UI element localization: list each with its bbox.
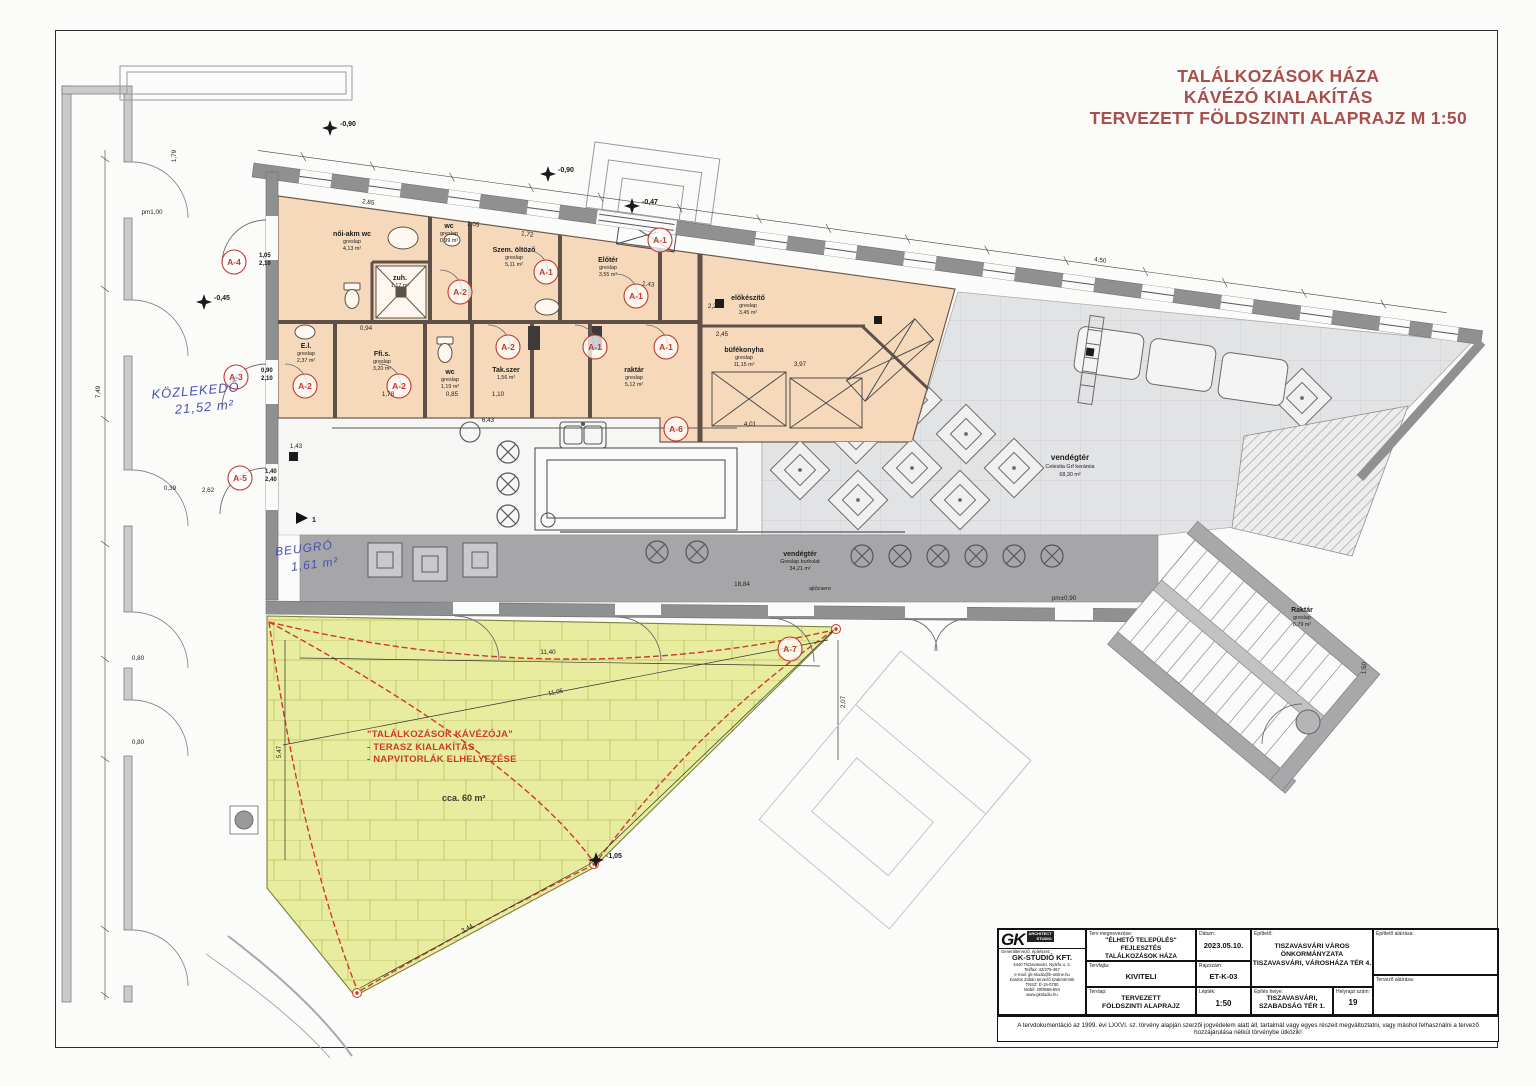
room-area: 3,20 m² — [373, 366, 391, 372]
logo-gk-text: GK — [1001, 931, 1025, 948]
room-finish: greslap — [505, 255, 523, 261]
project-name-line: TALÁLKOZÁSOK HÁZA — [1087, 953, 1195, 961]
field-label: Építtető: — [1252, 930, 1372, 937]
dim-label: pm±0,90 — [1052, 595, 1077, 602]
room-label: Ffi.s. — [374, 351, 390, 358]
drawing-number-value: ET-K-03 — [1197, 972, 1250, 981]
dim-label: 1,78 — [382, 391, 395, 398]
room-finish: Greslap burkolat — [780, 559, 820, 565]
room-area: 1,19 m² — [441, 384, 459, 390]
room-finish: greslap — [625, 375, 643, 381]
terrace-area — [267, 616, 841, 998]
door-marker-label: A-2 — [501, 342, 515, 352]
neighbour-building-walls — [62, 86, 188, 1002]
project-name-cell: Terv megnevezése: "ÉLHETŐ TELEPÜLÉS" FEJ… — [1086, 929, 1196, 961]
level-value: -0,45 — [214, 295, 230, 302]
level-value: -0,47 — [642, 199, 658, 206]
dim-label: 2,85 — [362, 198, 376, 207]
dim-label: 5,47 — [276, 745, 283, 758]
door-size: 1,05 — [259, 253, 271, 259]
room-label: zuh. — [393, 275, 407, 282]
door-marker-label: A-1 — [539, 267, 553, 277]
room-area: 0,99 m² — [440, 238, 458, 244]
terrace-area-label: cca. 60 m² — [442, 793, 486, 803]
project-name-line: "ÉLHETŐ TELEPÜLÉS" FEJLESZTÉS — [1087, 937, 1195, 953]
dim-label: 6,43 — [482, 417, 495, 424]
lot-number-value: 19 — [1334, 998, 1372, 1008]
room-area: 2,37 m² — [297, 358, 315, 364]
room-label: wc — [443, 223, 453, 230]
planter — [230, 806, 258, 834]
dim-label: 0,85 — [446, 391, 459, 398]
door-marker-label: A-5 — [233, 473, 247, 483]
room-label: wc — [444, 369, 454, 376]
level-value: -0,90 — [558, 167, 574, 174]
left-dimension-chain — [101, 150, 109, 1000]
dim-label: 0,80 — [132, 655, 145, 662]
field-label: Rajzszám: — [1197, 962, 1250, 969]
door-marker-label: A-4 — [227, 257, 241, 267]
client-cell: Építtető: TISZAVASVÁRI VÁROS ÖNKORMÁNYZA… — [1251, 929, 1373, 987]
drawing-sheet: 1 női-akm wc greslap 4,13 m² wc greslap … — [0, 0, 1536, 1086]
room-label: Tak.szer — [492, 367, 520, 374]
door-size: 1,40 — [265, 469, 277, 475]
room-finish: greslap — [1293, 615, 1311, 621]
room-area: 6,79 m² — [1293, 622, 1311, 628]
dim-label: 0,94 — [360, 325, 373, 332]
door-marker-label: A-2 — [298, 381, 312, 391]
title-block: GK ARCHITECT STUDIO Generáltervező, épít… — [997, 928, 1499, 1016]
room-area: 68,30 m² — [1059, 472, 1080, 478]
dim-label: 4,50 — [1094, 256, 1108, 265]
washbasin-icon — [295, 325, 315, 339]
dim-label: pm1,00 — [141, 209, 163, 216]
drawing-title-line1: TALÁLKOZÁSOK HÁZA — [1090, 66, 1467, 87]
door-size: 2,10 — [259, 261, 271, 267]
door-marker-label: A-1 — [659, 342, 673, 352]
field-label: Tervező aláírása: — [1374, 976, 1497, 983]
paved-corridor-band — [300, 532, 1158, 602]
door-marker-label: A-1 — [588, 342, 602, 352]
room-label: E.l. — [301, 343, 312, 350]
copyright-disclaimer: A tervdokumentáció az 1999. évi LXXVI. s… — [997, 1016, 1499, 1042]
room-finish: Celestia Grf kerámia — [1045, 464, 1094, 470]
dim-label: 4,01 — [744, 421, 757, 428]
field-label: Terv megnevezése: — [1087, 930, 1195, 937]
dim-label: 2,62 — [202, 487, 215, 494]
scale-cell: Lépték: 1:50 — [1196, 987, 1251, 1015]
field-label: Építtető aláírása: — [1374, 930, 1497, 937]
scale-value: 1:50 — [1197, 999, 1250, 1009]
door-marker-label: A-2 — [392, 381, 406, 391]
field-label: Tervfajta: — [1087, 962, 1195, 969]
door-marker-label: A-6 — [669, 424, 683, 434]
floor-plan-drawing: 1 női-akm wc greslap 4,13 m² wc greslap … — [0, 0, 1536, 1086]
room-label: vendégtér — [783, 551, 817, 558]
service-rooms — [278, 196, 955, 442]
drawing-number-cell: Rajzszám: ET-K-03 — [1196, 961, 1251, 987]
dim-label: 2,07 — [840, 695, 847, 708]
room-finish: greslap — [297, 351, 315, 357]
door-size: 0,90 — [261, 368, 273, 374]
dim-label: 1,10 — [492, 391, 505, 398]
washbasin-icon — [535, 299, 559, 315]
room-finish: greslap — [440, 231, 458, 237]
roof-outline — [120, 66, 352, 100]
terrace-annotation-line: - NAPVITORLÁK ELHELYEZÉSE — [367, 754, 517, 767]
dim-label: 1,50 — [1361, 661, 1368, 674]
designer-signature-cell: Tervező aláírása: — [1373, 975, 1498, 1015]
dim-label: 0,39 — [164, 485, 177, 492]
room-area: 5,11 m² — [505, 262, 523, 268]
room-area: 34,21 m² — [789, 566, 810, 572]
terrace-annotation: "TALÁLKOZÁSOK KÁVÉZÓJA" - TERASZ KIALAKÍ… — [367, 729, 517, 767]
dim-label: 3,97 — [794, 361, 807, 368]
date-cell: Dátum: 2023.05.10. — [1196, 929, 1251, 961]
door-size: 2,40 — [265, 477, 277, 483]
logo-studio-line: STUDIO — [1036, 936, 1051, 941]
dim-label: 11,40 — [540, 649, 556, 656]
ghost-structure-outline — [759, 651, 1031, 929]
company-logo: GK ARCHITECT STUDIO — [999, 930, 1085, 948]
toilet-icon — [344, 283, 360, 309]
terrace-annotation-line: "TALÁLKOZÁSOK KÁVÉZÓJA" — [367, 729, 517, 742]
door-marker-label: A-1 — [629, 291, 643, 301]
wall-chunk — [528, 326, 540, 350]
door-replacement-note: ajtócsere — [809, 586, 831, 592]
level-value: -1,05 — [606, 853, 622, 860]
dim-label: 18,84 — [734, 581, 750, 588]
room-label: női-akm wc — [333, 231, 371, 238]
field-label: Építés helye: — [1252, 988, 1332, 995]
dim-label: 2,45 — [716, 331, 729, 338]
room-label: Raktár — [1291, 607, 1313, 614]
door-marker-label: A-1 — [653, 235, 667, 245]
client-line: ÖNKORMÁNYZATA — [1252, 951, 1372, 959]
lot-number-cell: Helyrajzi szám: 19 — [1333, 987, 1373, 1015]
terrace-annotation-line: - TERASZ KIALAKÍTÁS — [367, 742, 517, 755]
room-label: Előtér — [598, 257, 618, 264]
plan-type-cell: Tervfajta: KIVITELI — [1086, 961, 1196, 987]
dim-label: 1,43 — [290, 443, 303, 450]
sheet-name-line: FÖLDSZINTI ALAPRAJZ — [1087, 1003, 1195, 1011]
section-number: 1 — [312, 517, 316, 524]
room-finish: greslap — [599, 265, 617, 271]
drawing-title: TALÁLKOZÁSOK HÁZA KÁVÉZÓ KIALAKÍTÁS TERV… — [1090, 66, 1467, 129]
room-area: 5,12 m² — [625, 382, 643, 388]
dim-label: 7,49 — [95, 385, 102, 398]
door-marker-label: A-2 — [453, 287, 467, 297]
drawing-title-line2: KÁVÉZÓ KIALAKÍTÁS — [1090, 87, 1467, 108]
room-label: raktár — [624, 367, 644, 374]
copyright-disclaimer-text: A tervdokumentáció az 1999. évi LXXVI. s… — [998, 1022, 1498, 1036]
toilet-icon — [437, 337, 453, 363]
company-cell: GK ARCHITECT STUDIO Generáltervező, épít… — [998, 929, 1086, 1015]
room-area: 3,45 m² — [739, 310, 757, 316]
field-label: Lépték: — [1197, 988, 1250, 995]
field-label: Dátum: — [1197, 930, 1250, 937]
dim-label: 1,79 — [171, 149, 178, 162]
client-line: TISZAVASVÁRI, VÁROSHÁZA TÉR 4. — [1252, 960, 1372, 968]
dim-label: 0,80 — [132, 739, 145, 746]
date-value: 2023.05.10. — [1197, 941, 1250, 950]
company-web-line: www.gkstudio.hu — [999, 992, 1085, 997]
room-area: 1,17 m² — [391, 283, 409, 289]
washbasin-icon — [388, 227, 418, 249]
room-finish: greslap — [739, 303, 757, 309]
sheet-name-cell: Tervlap: TERVEZETT FÖLDSZINTI ALAPRAJZ — [1086, 987, 1196, 1015]
room-label: büfékonyha — [724, 347, 763, 354]
field-label: Tervlap: — [1087, 988, 1195, 995]
dim-label: 2,22 — [708, 303, 721, 310]
shower-icon — [376, 266, 426, 318]
boiler-icon — [1296, 710, 1320, 734]
room-area: 1,56 m² — [497, 375, 515, 381]
room-finish: greslap — [441, 377, 459, 383]
plan-type-value: KIVITELI — [1087, 972, 1195, 981]
drawing-title-line3: TERVEZETT FÖLDSZINTI ALAPRAJZ M 1:50 — [1090, 108, 1467, 129]
room-label: vendégtér — [1051, 453, 1089, 462]
client-signature-cell: Építtető aláírása: — [1373, 929, 1498, 975]
field-label: Helyrajzi szám: — [1334, 988, 1372, 995]
room-finish: greslap — [735, 355, 753, 361]
room-area: 11,15 m² — [734, 362, 755, 368]
room-area: 4,13 m² — [343, 246, 361, 252]
site-line: SZABADSÁG TÉR 1. — [1252, 1003, 1332, 1011]
door-marker-label: A-7 — [783, 644, 797, 654]
site-cell: Építés helye: TISZAVASVÁRI, SZABADSÁG TÉ… — [1251, 987, 1333, 1015]
room-area: 3,55 m² — [599, 272, 617, 278]
room-finish: greslap — [343, 239, 361, 245]
room-label: előkészítő — [731, 295, 765, 302]
door-size: 2,10 — [261, 376, 273, 382]
company-name: GK-STUDIÓ KFT. — [999, 954, 1085, 962]
logo-studio-box: ARCHITECT STUDIO — [1027, 931, 1054, 942]
level-value: -0,90 — [340, 121, 356, 128]
